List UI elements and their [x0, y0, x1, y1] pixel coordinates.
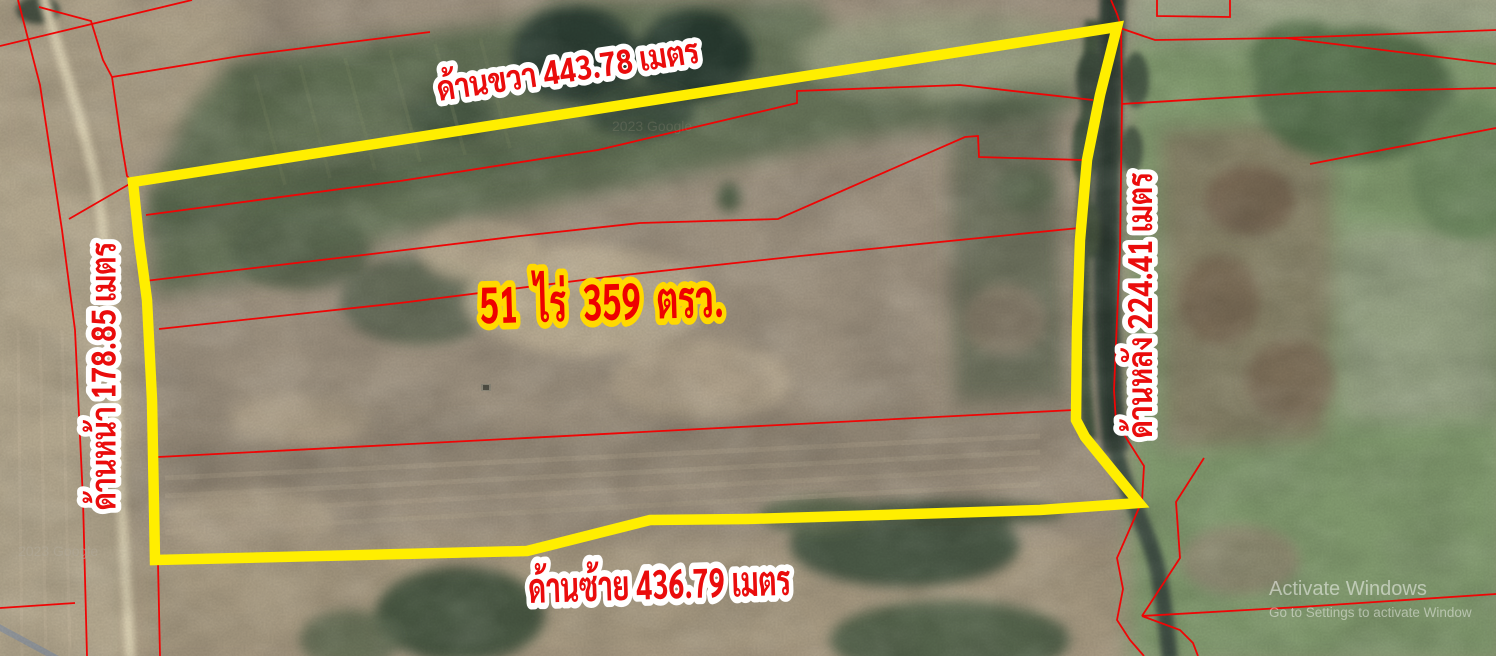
- svg-text:Activate Windows: Activate Windows: [1269, 578, 1427, 600]
- svg-text:2023 Google: 2023 Google: [18, 543, 98, 559]
- svg-text:Go to Settings to activate Win: Go to Settings to activate Window: [1269, 605, 1472, 620]
- svg-text:2023 Google: 2023 Google: [612, 118, 692, 134]
